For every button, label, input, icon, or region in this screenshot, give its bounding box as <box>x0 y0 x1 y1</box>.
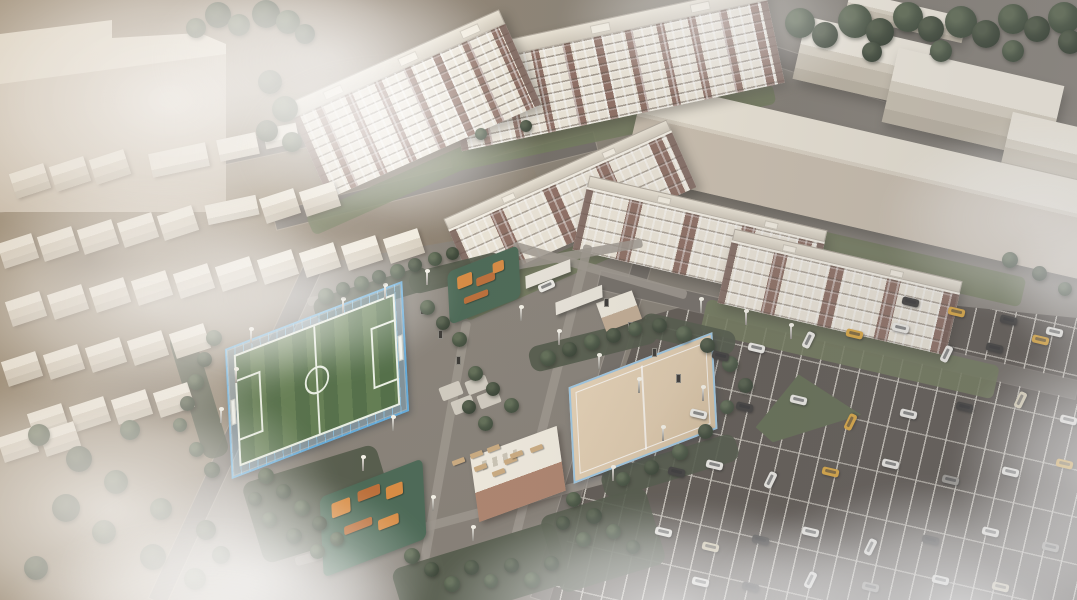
render-scene <box>0 0 1077 600</box>
tree <box>672 444 688 460</box>
cloud <box>1000 200 1077 380</box>
lamp <box>702 388 704 401</box>
tree <box>468 366 483 381</box>
tree <box>698 424 713 439</box>
tree <box>720 400 734 414</box>
tree <box>462 400 476 414</box>
board <box>652 348 657 357</box>
cloud <box>0 520 420 600</box>
tree <box>644 460 659 475</box>
tree <box>562 342 577 357</box>
tree <box>540 350 556 366</box>
tree <box>584 334 600 350</box>
lamp <box>392 418 394 431</box>
tree <box>504 398 519 413</box>
lamp <box>520 308 522 321</box>
climbing-bar <box>464 289 489 305</box>
lamp <box>558 332 560 345</box>
tree <box>1002 40 1024 62</box>
cloud <box>560 0 880 100</box>
tree <box>478 416 493 431</box>
tree <box>486 382 500 396</box>
tree <box>1024 16 1050 42</box>
cloud <box>140 210 460 380</box>
board <box>676 374 681 383</box>
play-structure <box>492 259 504 274</box>
tree <box>972 20 1000 48</box>
tree <box>616 472 630 486</box>
tree <box>930 40 952 62</box>
slide <box>476 271 495 287</box>
tree <box>1058 30 1077 54</box>
tree <box>1048 2 1077 34</box>
lamp <box>745 312 747 325</box>
lamp <box>638 380 640 393</box>
tree <box>738 378 753 393</box>
lamp <box>662 428 664 441</box>
tree <box>676 326 692 342</box>
lamp <box>790 326 792 339</box>
tree <box>918 16 944 42</box>
lamp <box>612 468 614 481</box>
lamp <box>700 300 702 313</box>
tree <box>628 322 642 336</box>
tree <box>606 328 621 343</box>
tree <box>652 318 667 333</box>
lamp <box>598 356 600 369</box>
board <box>604 298 609 307</box>
